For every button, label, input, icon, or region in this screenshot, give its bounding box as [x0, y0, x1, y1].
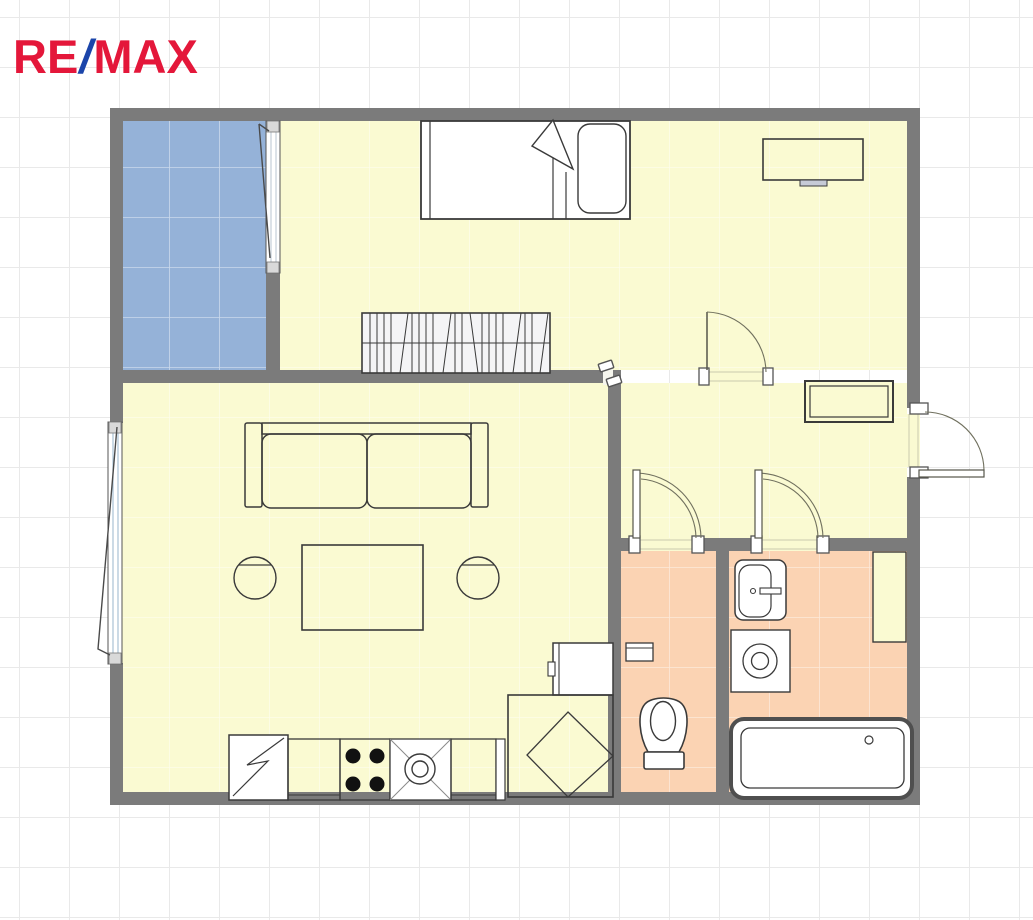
wall-left-lower: [110, 663, 123, 805]
door-swing-arc: [925, 412, 984, 470]
jamb-block: [763, 368, 773, 385]
hall-shelf: [805, 381, 893, 422]
floor-plan: [0, 0, 1033, 920]
bathroom-sink: [735, 560, 786, 620]
wall-top: [110, 108, 920, 121]
burner: [370, 749, 385, 764]
wall-hall-living: [608, 377, 621, 792]
wall-right-upper: [907, 108, 920, 408]
jamb-block: [692, 536, 704, 553]
door-leaf: [633, 470, 640, 538]
desk-chair-tab: [800, 180, 827, 186]
toilet: [640, 698, 687, 769]
pillow: [578, 124, 626, 213]
wall-balcony-right: [266, 271, 280, 372]
living-room-window: [98, 422, 122, 664]
faucet: [760, 588, 781, 594]
burner: [346, 777, 361, 792]
page: RE/MAX: [0, 0, 1033, 920]
wall-wc-bath: [716, 551, 729, 792]
washing-machine: [731, 630, 790, 692]
bathroom-cabinet: [873, 552, 906, 642]
door-leaf: [755, 470, 762, 538]
toilet-paper-holder: [626, 643, 653, 661]
jamb-block: [109, 422, 121, 433]
bed: [421, 120, 630, 219]
wall-wet-right: [829, 538, 907, 551]
burner: [346, 749, 361, 764]
entry-door: [907, 403, 984, 478]
bathtub: [731, 719, 912, 798]
jamb-block: [817, 536, 829, 553]
jamb-block: [109, 653, 121, 664]
jamb-block: [699, 368, 709, 385]
wall-wet-mid: [704, 538, 753, 551]
kitchen-sink: [390, 739, 451, 800]
jamb-block: [267, 262, 279, 273]
tv-cabinet: [548, 643, 613, 695]
fridge: [229, 735, 288, 800]
door-leaf: [919, 470, 984, 477]
wardrobe: [362, 313, 550, 373]
burner: [370, 777, 385, 792]
